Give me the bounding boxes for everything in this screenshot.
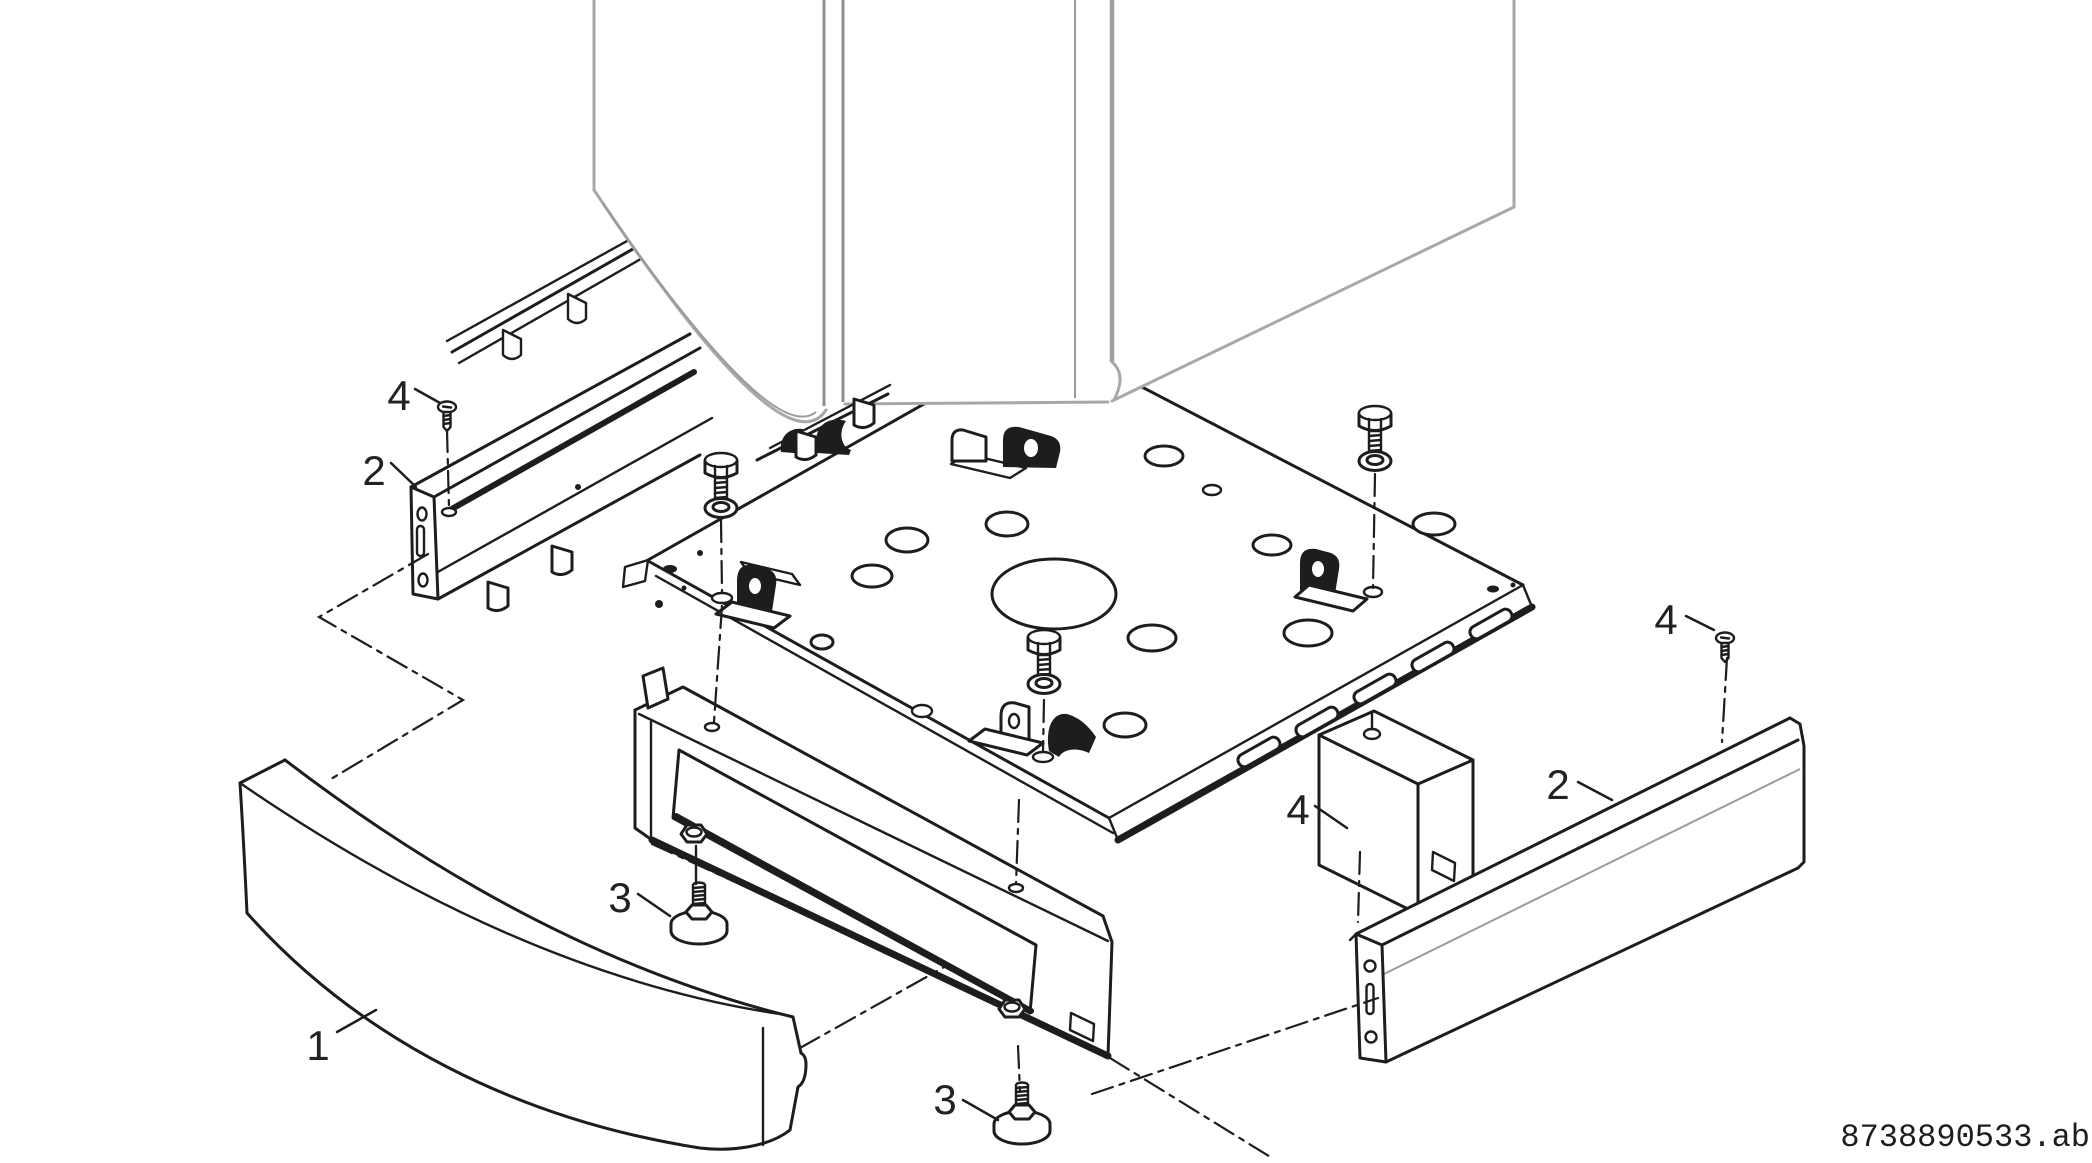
appliance-body bbox=[594, 0, 1514, 460]
diagram-page: 4 2 1 3 3 4 2 4 8738890533.ab bbox=[0, 0, 2092, 1163]
callout-label-3-bottom: 3 bbox=[933, 1076, 956, 1123]
hex-bolt bbox=[705, 453, 737, 503]
callout-label-2-right: 2 bbox=[1546, 761, 1569, 808]
leveling-foot bbox=[994, 1083, 1050, 1145]
support-block bbox=[1319, 711, 1473, 914]
rear-rail bbox=[447, 236, 646, 363]
callout-label-4-upper-left: 4 bbox=[387, 372, 410, 419]
large-center-hole bbox=[992, 559, 1116, 629]
callout-label-3-left: 3 bbox=[608, 874, 631, 921]
callout-label-2-left: 2 bbox=[362, 447, 385, 494]
countersunk-screw bbox=[438, 402, 456, 432]
callout-label-4-middle: 4 bbox=[1286, 786, 1309, 833]
plate-corner-tab bbox=[623, 560, 648, 587]
hex-bolt bbox=[1359, 406, 1391, 456]
rail-foot-tab bbox=[488, 582, 508, 611]
rail-foot-tab bbox=[552, 546, 572, 575]
callout-label-1: 1 bbox=[306, 1022, 329, 1069]
leveling-foot bbox=[671, 883, 727, 945]
front-rail-tab bbox=[643, 668, 668, 708]
reference-code: 8738890533.ab bbox=[1840, 1119, 2090, 1156]
washer bbox=[1359, 452, 1391, 471]
callout-label-4-right: 4 bbox=[1654, 596, 1677, 643]
hex-nut bbox=[681, 825, 707, 842]
exploded-diagram: 4 2 1 3 3 4 2 4 8738890533.ab bbox=[0, 0, 2092, 1163]
washer bbox=[705, 499, 737, 518]
countersunk-screw bbox=[1716, 633, 1734, 663]
hex-nut bbox=[999, 1000, 1025, 1017]
washer bbox=[1028, 675, 1060, 694]
